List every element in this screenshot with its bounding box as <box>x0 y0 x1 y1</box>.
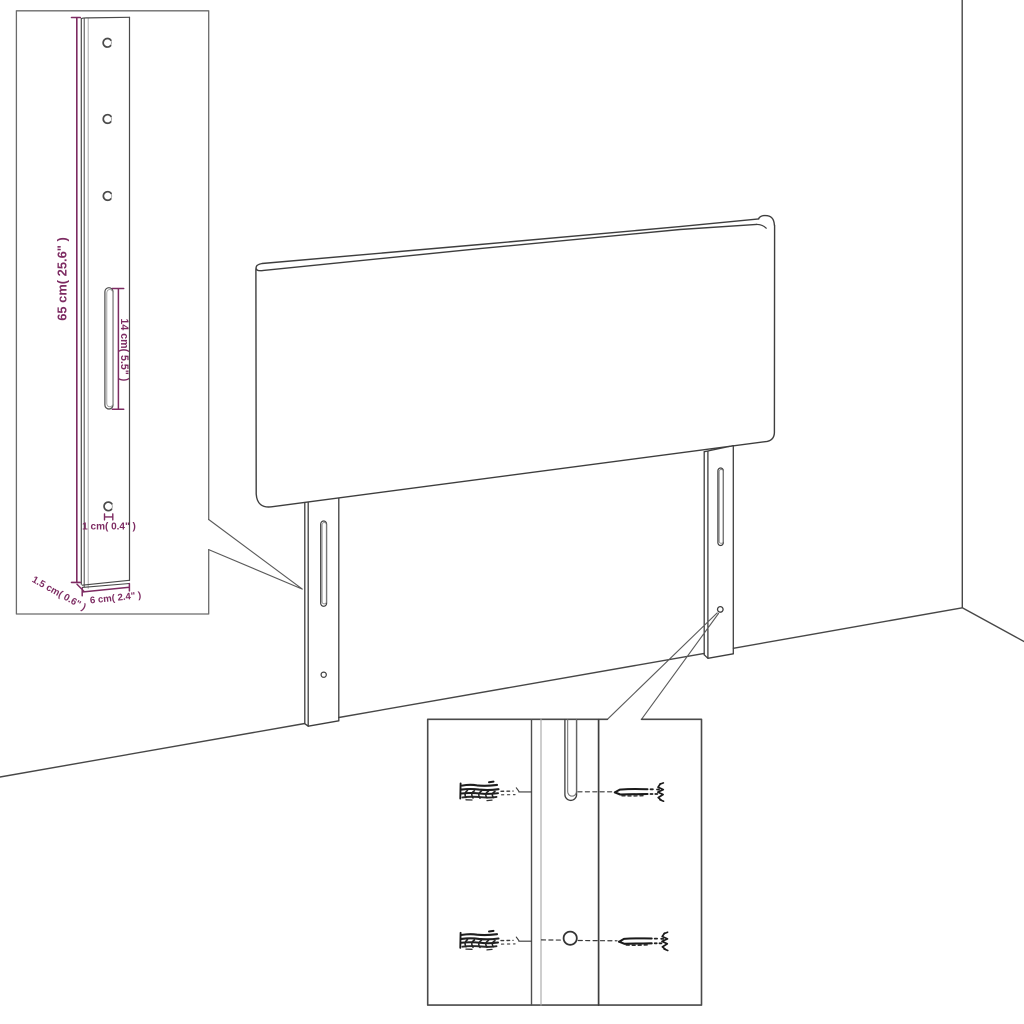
svg-text:14 cm( 5.5" ): 14 cm( 5.5" ) <box>118 319 130 382</box>
svg-text:1 cm( 0.4" ): 1 cm( 0.4" ) <box>82 521 136 532</box>
svg-text:65 cm( 25.6" ): 65 cm( 25.6" ) <box>55 237 70 321</box>
